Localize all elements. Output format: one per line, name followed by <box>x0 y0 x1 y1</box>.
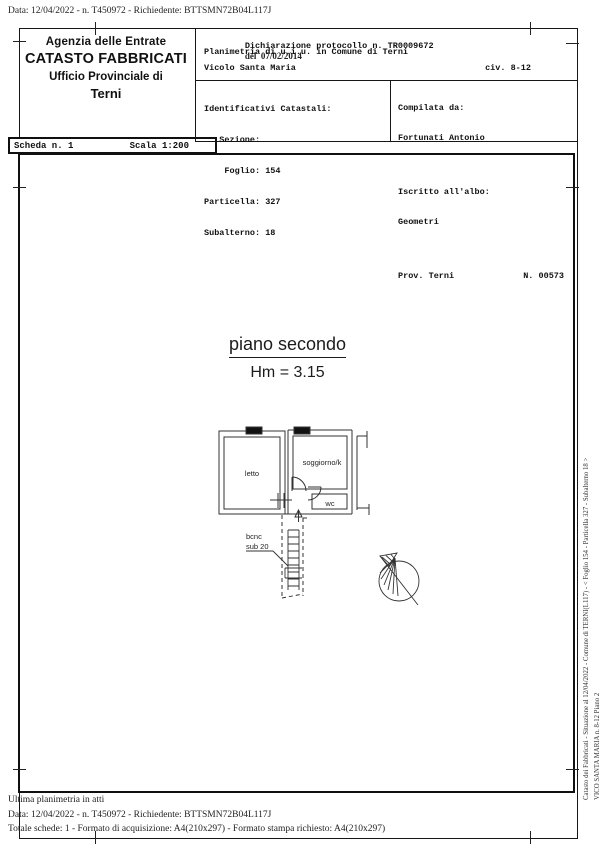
window-symbol <box>294 427 310 434</box>
particella-line: Particella: 327 <box>204 197 384 208</box>
scheda-box: Scheda n. 1 Scala 1:200 <box>8 137 217 154</box>
box-divider <box>390 80 391 141</box>
foglio-line: Foglio: 154 <box>204 166 384 177</box>
letto-label: letto <box>245 469 259 478</box>
declaration-header: Dichiarazione protocollo n. TR0009672 de… <box>196 28 577 80</box>
catasto-title: CATASTO FABBRICATI <box>20 51 192 67</box>
side-caption-cadastre: Catasto dei Fabbricati - Situazione al 1… <box>583 372 590 800</box>
threshold-symbol <box>295 510 302 522</box>
wc-label: wc <box>324 499 334 508</box>
subalterno-line: Subalterno: 18 <box>204 228 384 239</box>
registration-tick <box>566 769 579 770</box>
compiled-by-label: Compilata da: <box>398 104 570 114</box>
cadastral-identifiers: Identificativi Catastali: Sezione: Fogli… <box>204 84 384 259</box>
planimetria-sheet: Data: 12/04/2022 - n. T450972 - Richiede… <box>0 0 610 862</box>
agency-name: Agenzia delle Entrate <box>20 36 192 48</box>
agency-header: Agenzia delle Entrate CATASTO FABBRICATI… <box>20 36 192 101</box>
floor-title: piano secondo <box>215 334 360 358</box>
registration-tick <box>530 831 531 844</box>
identifiers-title: Identificativi Catastali: <box>204 104 384 115</box>
footer-request: Data: 12/04/2022 - n. T450972 - Richiede… <box>8 810 271 820</box>
box-divider <box>196 80 577 81</box>
footer-note: Ultima planimetria in atti <box>8 795 104 805</box>
north-arrow-icon <box>370 543 430 608</box>
bcnc-dashed-outline <box>282 515 310 598</box>
compiled-by-cell: Compilata da: Fortunati Antonio Iscritto… <box>398 84 570 302</box>
footer-formats: Totale schede: 1 - Formato di acquisizio… <box>8 824 385 834</box>
register-type: Geometri <box>398 218 570 228</box>
civic-number: civ. 8-12 <box>485 63 531 73</box>
window-symbol <box>246 427 262 434</box>
registration-tick <box>95 22 96 35</box>
street-name: Vicolo Santa Maria <box>204 63 296 73</box>
bcnc-sub-label: sub 20 <box>246 542 269 551</box>
province-label: Prov. Terni <box>398 272 454 282</box>
office-label: Ufficio Provinciale di <box>20 71 192 83</box>
office-city: Terni <box>20 86 192 101</box>
surveyor-name: Fortunati Antonio <box>398 134 570 144</box>
room-height-label: Hm = 3.15 <box>215 364 360 382</box>
staircase <box>285 530 302 590</box>
register-label: Iscritto all'albo: <box>398 188 570 198</box>
threshold-symbol <box>270 493 292 508</box>
bcnc-label: bcnc <box>246 532 262 541</box>
soggiorno-label: soggiorno/k <box>303 458 342 467</box>
scheda-number: Scheda n. 1 <box>14 141 73 151</box>
planimetria-line: Planimetria di u.i.u. in Comune di Terni <box>204 47 408 57</box>
side-caption-address: VICO SANTA MARIA n. 8-12 Piano 2 <box>594 372 601 800</box>
scale-label: Scala 1:200 <box>130 141 189 151</box>
floor-title-text: piano secondo <box>229 334 346 358</box>
registration-tick <box>13 769 26 770</box>
register-number: N. 00573 <box>523 272 564 282</box>
request-info-top: Data: 12/04/2022 - n. T450972 - Richiede… <box>8 6 271 16</box>
declaration-box: Dichiarazione protocollo n. TR0009672 de… <box>195 28 577 142</box>
sezione-line: Sezione: <box>204 135 384 146</box>
registration-tick <box>13 187 26 188</box>
